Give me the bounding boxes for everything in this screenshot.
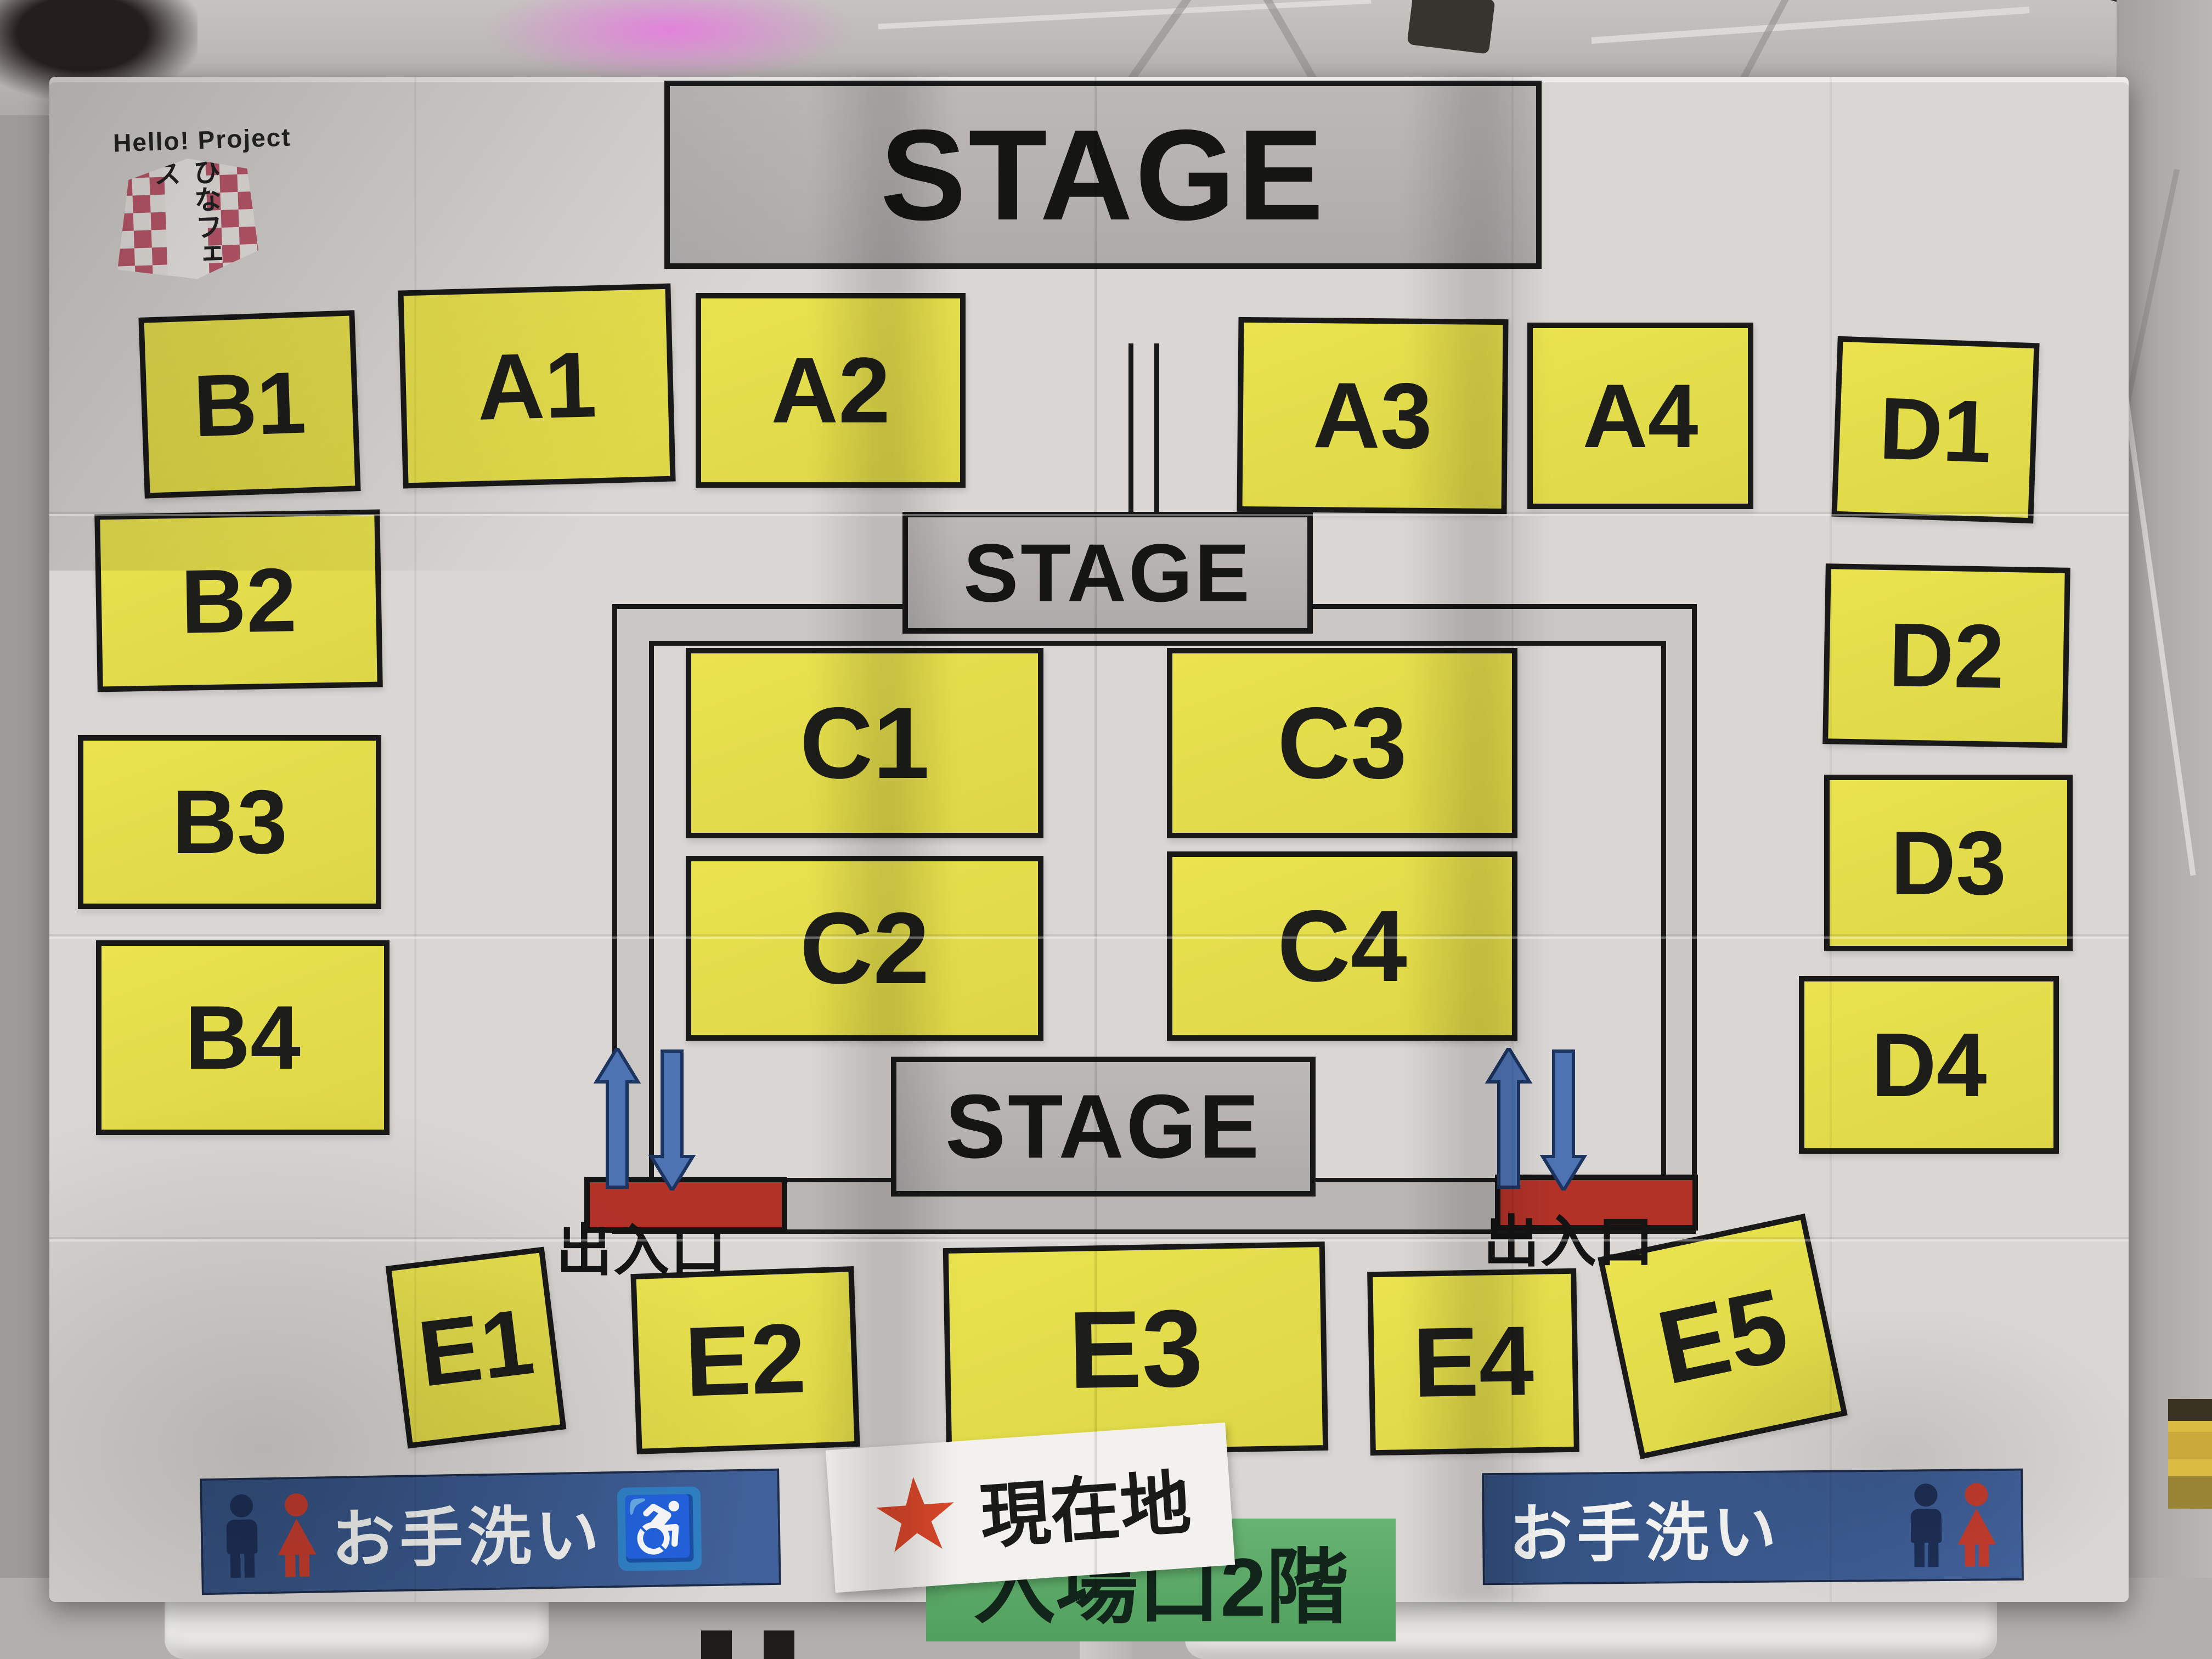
current-location-label: 現在地 — [977, 1446, 1194, 1561]
female-person-icon — [1956, 1483, 1997, 1567]
seat-block-label: C2 — [800, 890, 930, 1007]
seat-block-label: B4 — [185, 986, 301, 1090]
seat-block-d4: D4 — [1799, 976, 2059, 1154]
seat-block-label: E5 — [1648, 1265, 1798, 1408]
seat-block-a2: A2 — [696, 293, 966, 488]
female-person-icon — [276, 1493, 318, 1577]
restroom-label: お手洗い — [331, 1483, 605, 1581]
stage-center-label: STAGE — [963, 526, 1252, 620]
seat-block-label: E4 — [1412, 1304, 1535, 1420]
seat-block-label: E3 — [1068, 1285, 1204, 1413]
seat-block-label: A4 — [1583, 364, 1699, 468]
seat-block-label: B3 — [172, 770, 287, 874]
seat-block-c4: C4 — [1167, 851, 1517, 1041]
stage-bottom-label: STAGE — [945, 1075, 1261, 1178]
seat-block-label: D3 — [1891, 811, 2006, 915]
seat-block-d1: D1 — [1831, 336, 2039, 524]
event-logo: Hello! Project ひなフェス — [112, 122, 296, 281]
restroom-sign-left: お手洗い ♿ — [200, 1469, 781, 1595]
stage-light-glow — [483, 0, 856, 82]
seat-block-e3: E3 — [943, 1242, 1329, 1457]
wheelchair-glyph: ♿ — [620, 1492, 698, 1565]
poster-crease — [49, 1237, 2129, 1239]
male-person-icon — [221, 1494, 263, 1578]
logo-event-text: ひなフェス — [145, 157, 228, 281]
floor-mark — [764, 1630, 794, 1659]
background-banner-fragment — [2168, 1399, 2212, 1509]
stage-top: STAGE — [664, 81, 1542, 269]
stage-top-label: STAGE — [880, 100, 1325, 249]
seat-block-label: E1 — [413, 1288, 539, 1408]
seat-block-d2: D2 — [1822, 563, 2070, 748]
seat-block-label: B1 — [192, 352, 308, 456]
seat-block-label: E2 — [683, 1301, 808, 1419]
restroom-sign-right: お手洗い — [1482, 1469, 2024, 1585]
venue-map-poster: STAGE STAGE STAGE B1 A1 A2 A3 A4 D1 B2 B… — [49, 77, 2129, 1602]
seat-block-b3: B3 — [78, 735, 381, 909]
wheelchair-icon: ♿ — [617, 1486, 702, 1571]
two-way-arrows-icon — [590, 1048, 699, 1190]
floor-mark — [701, 1630, 732, 1659]
seat-block-label: D4 — [1871, 1013, 1987, 1117]
current-location-sign: ★ 現在地 — [826, 1423, 1235, 1593]
seat-block-label: A2 — [771, 337, 890, 444]
stage-center: STAGE — [902, 512, 1313, 634]
stage-bottom: STAGE — [891, 1057, 1316, 1197]
seat-block-c1: C1 — [686, 648, 1043, 838]
seat-block-c3: C3 — [1167, 648, 1517, 838]
seat-block-label: D2 — [1888, 603, 2005, 709]
seat-block-d3: D3 — [1824, 775, 2073, 951]
seat-block-label: B2 — [180, 548, 297, 654]
exit-label-right: 出入口 — [1443, 1197, 1695, 1278]
seat-block-e2: E2 — [630, 1266, 860, 1454]
seat-block-label: D1 — [1878, 377, 1994, 482]
restroom-label: お手洗い — [1508, 1481, 1781, 1575]
logo-emblem: ひなフェス — [114, 156, 259, 282]
logo-event-strip: ひなフェス — [163, 158, 210, 280]
logo-brand-text: Hello! Project — [112, 122, 291, 157]
seat-block-a3: A3 — [1237, 317, 1508, 514]
seat-block-b1: B1 — [138, 310, 360, 499]
seat-block-b4: B4 — [96, 940, 390, 1135]
seat-block-a4: A4 — [1527, 323, 1753, 509]
seat-block-a1: A1 — [398, 284, 675, 489]
exit-label-left: 出入口 — [516, 1206, 768, 1286]
seat-block-label: C3 — [1277, 685, 1407, 802]
seat-block-e4: E4 — [1367, 1268, 1579, 1456]
seat-block-label: C1 — [800, 685, 930, 802]
current-location-star-icon: ★ — [867, 1462, 964, 1570]
male-person-icon — [1905, 1483, 1946, 1567]
seat-block-c2: C2 — [686, 856, 1043, 1041]
seat-block-b2: B2 — [94, 509, 383, 692]
seat-block-label: A1 — [476, 331, 597, 442]
two-way-arrows-icon — [1481, 1048, 1591, 1190]
seat-block-label: A3 — [1312, 362, 1432, 470]
seat-block-label: C4 — [1277, 888, 1407, 1005]
restroom-icons — [1905, 1483, 1997, 1567]
